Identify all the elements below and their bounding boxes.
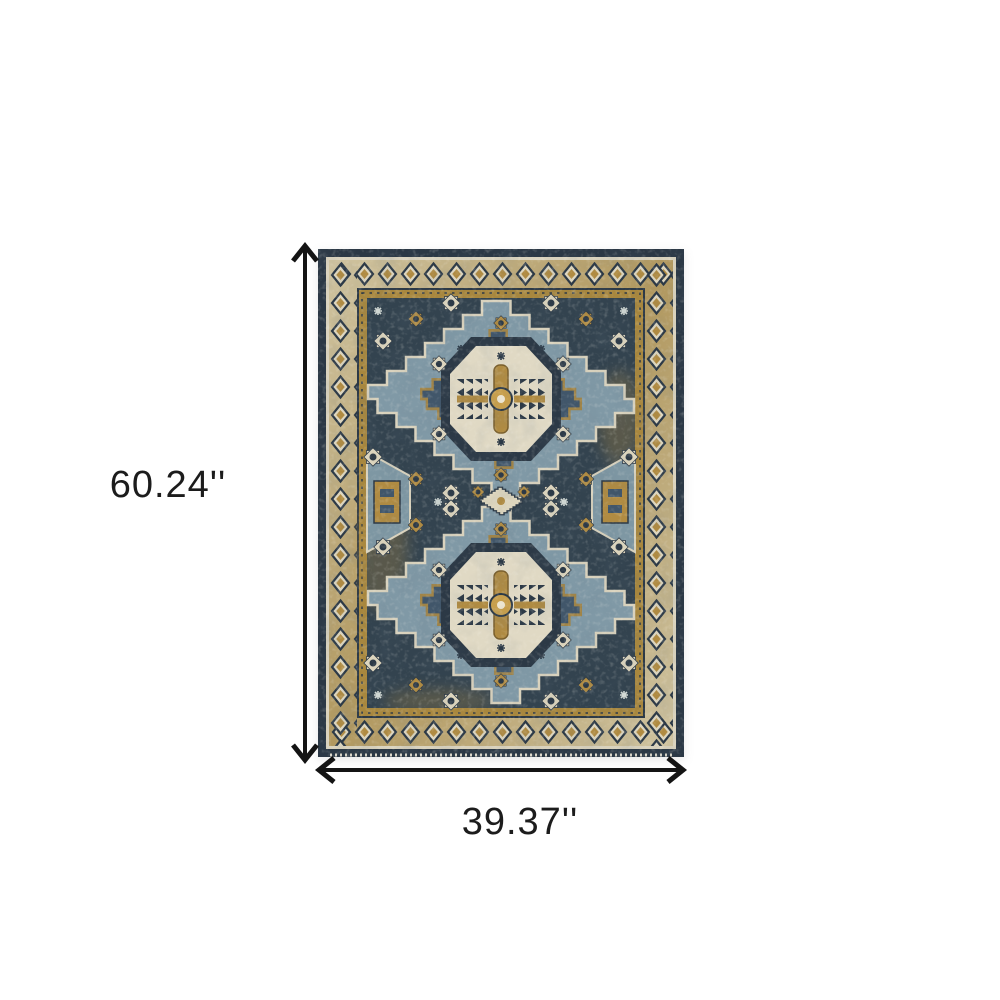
width-dimension-label: 39.37'' <box>400 799 640 847</box>
rug-image <box>318 249 684 757</box>
horizontal-dimension-arrow <box>319 758 683 782</box>
rug-texture-dark <box>318 249 684 757</box>
height-dimension-label: 60.24'' <box>48 462 288 510</box>
product-dimension-image: 60.24'' 39.37'' <box>0 0 1000 1000</box>
vertical-dimension-arrow <box>293 246 317 760</box>
